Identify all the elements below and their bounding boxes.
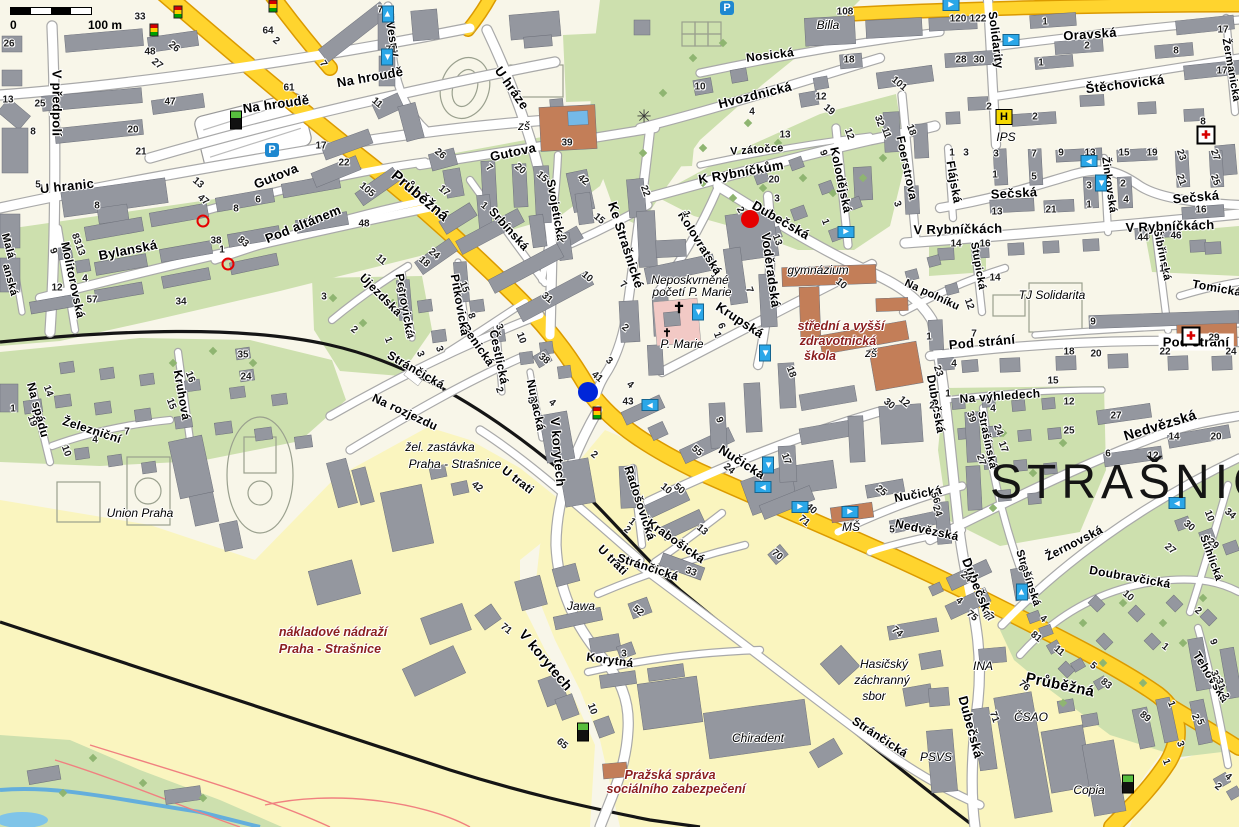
scale-end: 100 m [88, 18, 122, 32]
map-base-graphics [0, 0, 1239, 827]
scale-bar-graphic [10, 7, 92, 15]
scale-bar: 0 100 m [10, 7, 122, 32]
district-label: STRAŠNICE [990, 455, 1239, 510]
scale-start: 0 [10, 18, 17, 32]
map-canvas[interactable]: V předpolíU hrázeNa hrouděNa hrouděU Ves… [0, 0, 1239, 827]
